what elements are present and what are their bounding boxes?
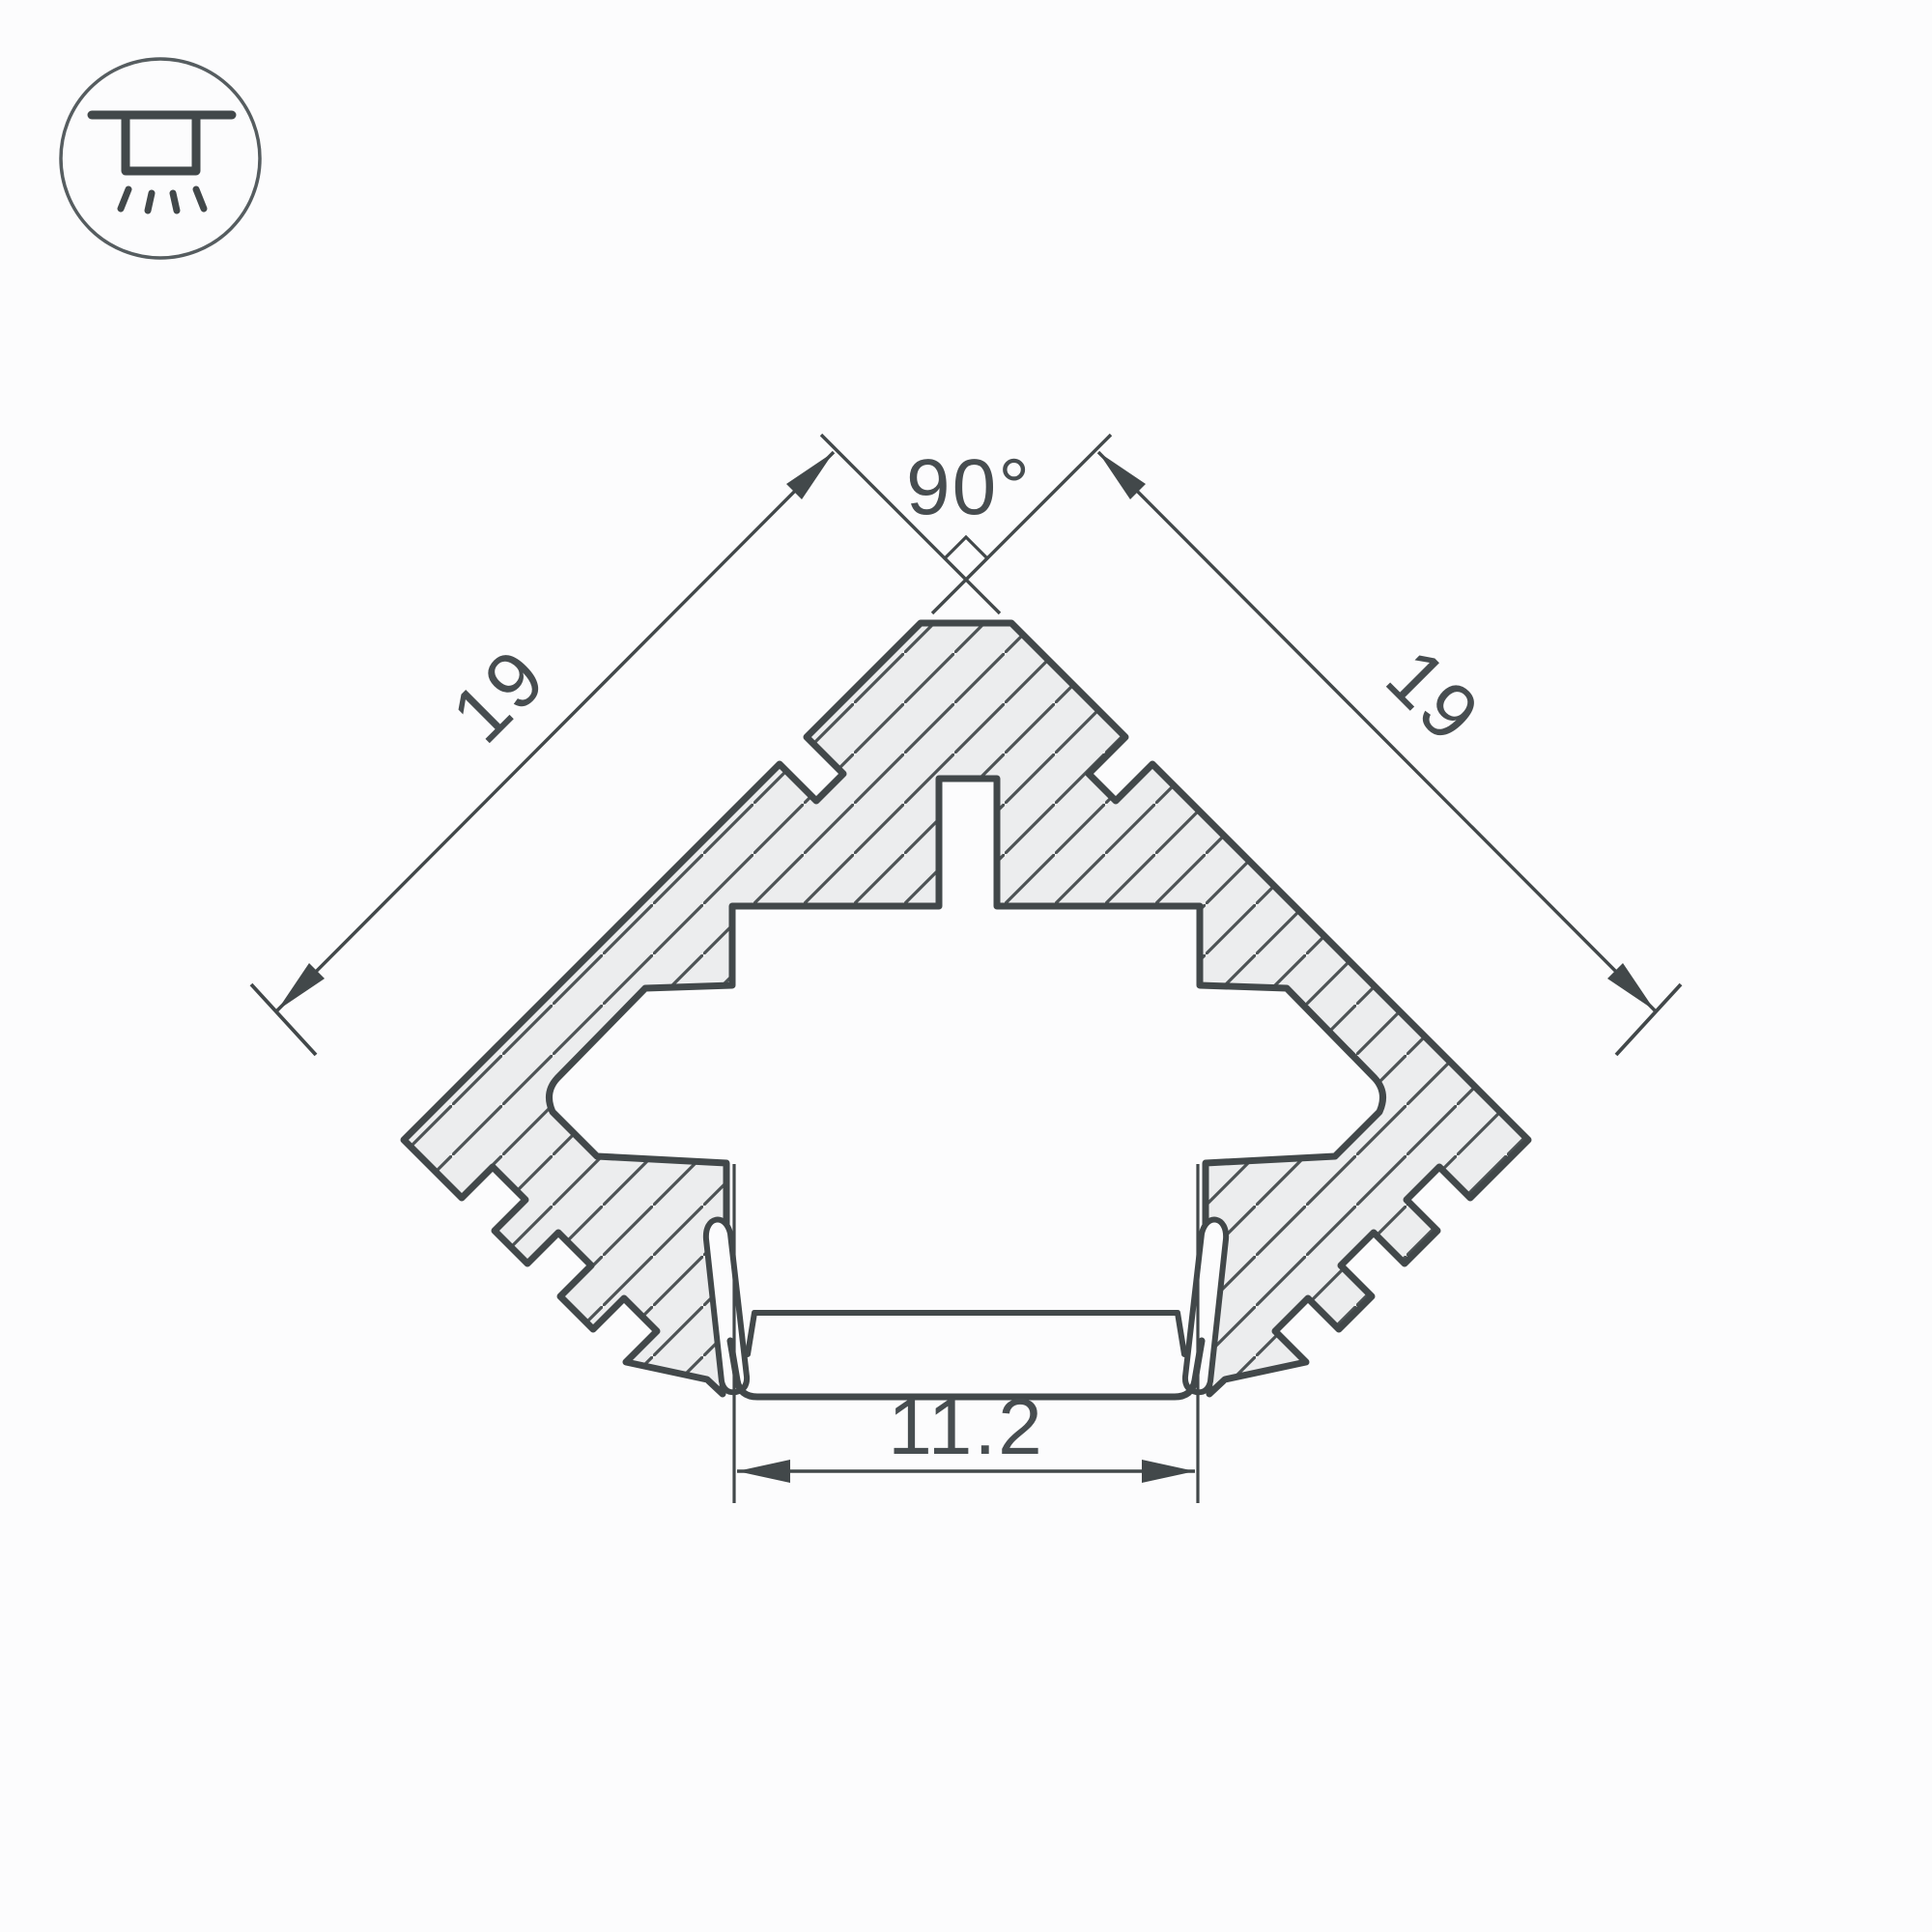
- dimension-line-right: [1098, 452, 1655, 1010]
- side-dimension-left-label: 19: [436, 633, 563, 760]
- extension-tick-right-corner: [1616, 984, 1681, 1055]
- dimension-line-left: [277, 452, 834, 1010]
- profile-outline: [404, 623, 1528, 1394]
- side-dimension-right-label: 19: [1370, 633, 1497, 760]
- diffuser-plate: [748, 1313, 1184, 1354]
- arrowhead-opening-right: [1142, 1460, 1195, 1483]
- icon-circle: [61, 59, 260, 258]
- recessed-light-icon: [61, 59, 260, 258]
- icon-light-rays: [121, 189, 204, 211]
- extension-tick-left-corner: [251, 984, 316, 1055]
- side-dimension-left: [251, 452, 834, 1055]
- opening-dimension-label: 11.2: [888, 1383, 1044, 1471]
- side-dimension-right: [1098, 452, 1681, 1055]
- page: 90° 19 19 11.2: [0, 0, 1932, 1932]
- angle-dimension-label: 90°: [906, 443, 1032, 531]
- icon-fixture-box: [126, 115, 196, 171]
- right-angle-square-mark: [945, 537, 987, 580]
- profile-body: [404, 623, 1528, 1397]
- arrowhead-opening-left: [737, 1460, 790, 1483]
- technical-drawing: 90° 19 19 11.2: [0, 0, 1932, 1932]
